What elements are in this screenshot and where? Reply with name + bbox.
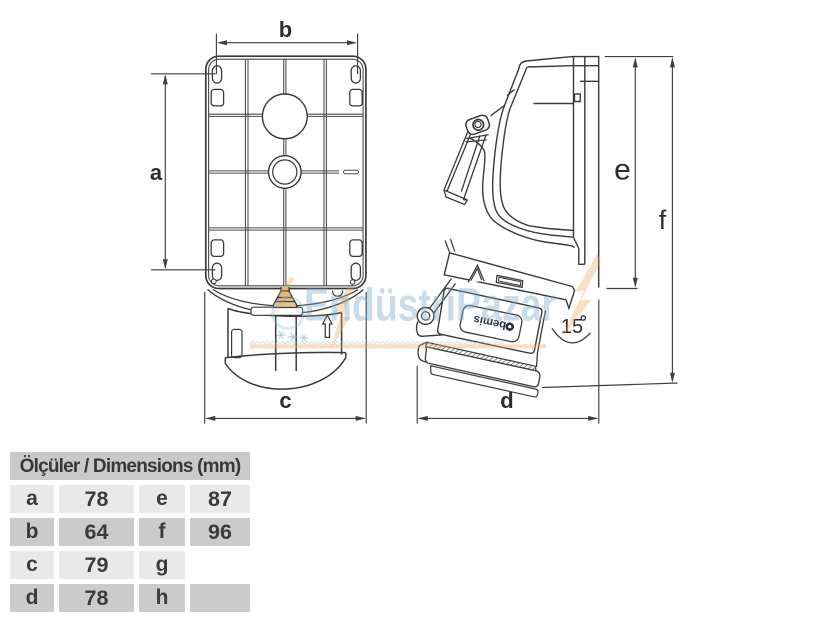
svg-text:EndüstriPazar: EndüstriPazar	[304, 279, 556, 331]
svg-text:a: a	[150, 160, 163, 185]
svg-text:d: d	[500, 388, 513, 413]
svg-text:f: f	[659, 205, 667, 235]
svg-text:e: e	[614, 154, 631, 187]
svg-text:b: b	[279, 17, 292, 42]
svg-text:c: c	[279, 388, 291, 413]
